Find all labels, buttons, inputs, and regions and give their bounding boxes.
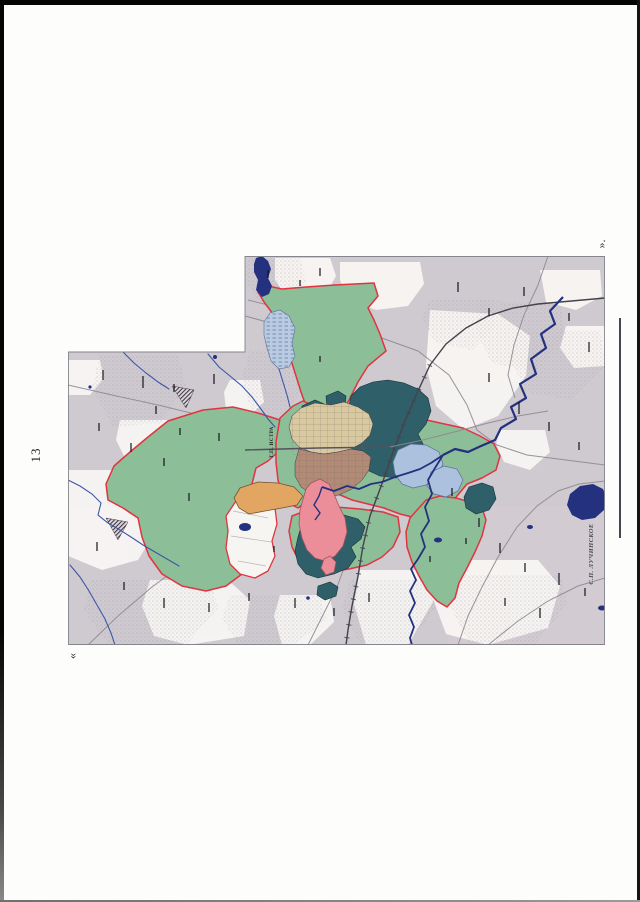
scanned-page: 13 « ». [0,0,640,902]
right-margin-line [619,318,621,538]
district-label: С.П. ЛУЧИНСКОЕ [588,523,595,585]
page-number: 13 [22,437,50,473]
right-quote-mark: ». [591,233,611,255]
scan-edge-top [0,0,640,5]
zoning-map: Г.П. ИСТРА С.П. ЛУЧИНСКОЕ [68,256,605,645]
left-quote-mark: « [62,646,82,666]
town-label: Г.П. ИСТРА [269,426,275,457]
scan-edge-left [0,0,4,902]
